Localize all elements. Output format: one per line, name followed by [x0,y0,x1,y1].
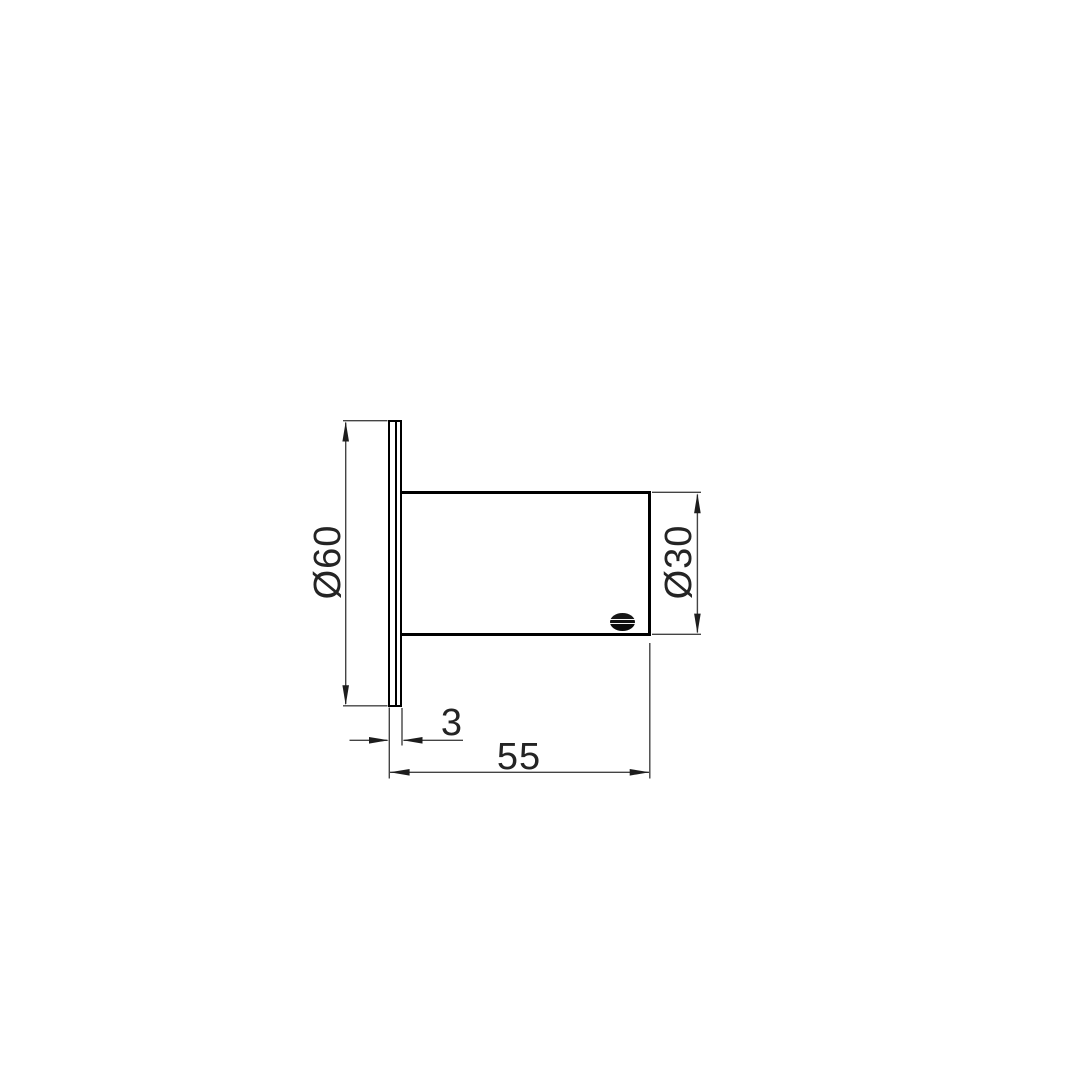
dimension-label-flange-diameter: Ø60 [309,525,347,600]
dimension-label-overall-depth: 55 [497,738,541,776]
technical-drawing-canvas: Ø60 Ø30 3 55 [0,0,1080,1080]
brand-logo-icon [610,613,635,631]
dimension-label-body-diameter: Ø30 [660,525,698,600]
flange-edge-line [395,421,397,705]
dimension-label-flange-thickness: 3 [441,704,463,742]
